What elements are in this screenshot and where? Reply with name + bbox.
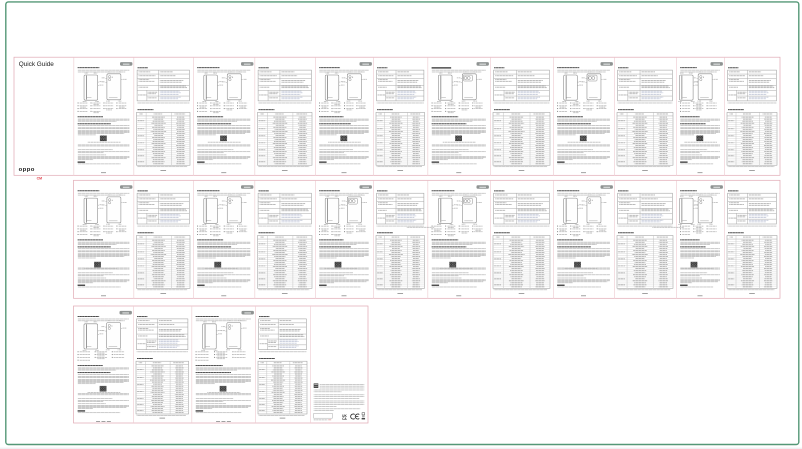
- svg-text:CA: CA: [342, 417, 347, 421]
- svg-text:CM: CM: [37, 177, 43, 181]
- svg-text:oppo: oppo: [19, 167, 35, 173]
- svg-text:Quick Guide: Quick Guide: [19, 61, 55, 68]
